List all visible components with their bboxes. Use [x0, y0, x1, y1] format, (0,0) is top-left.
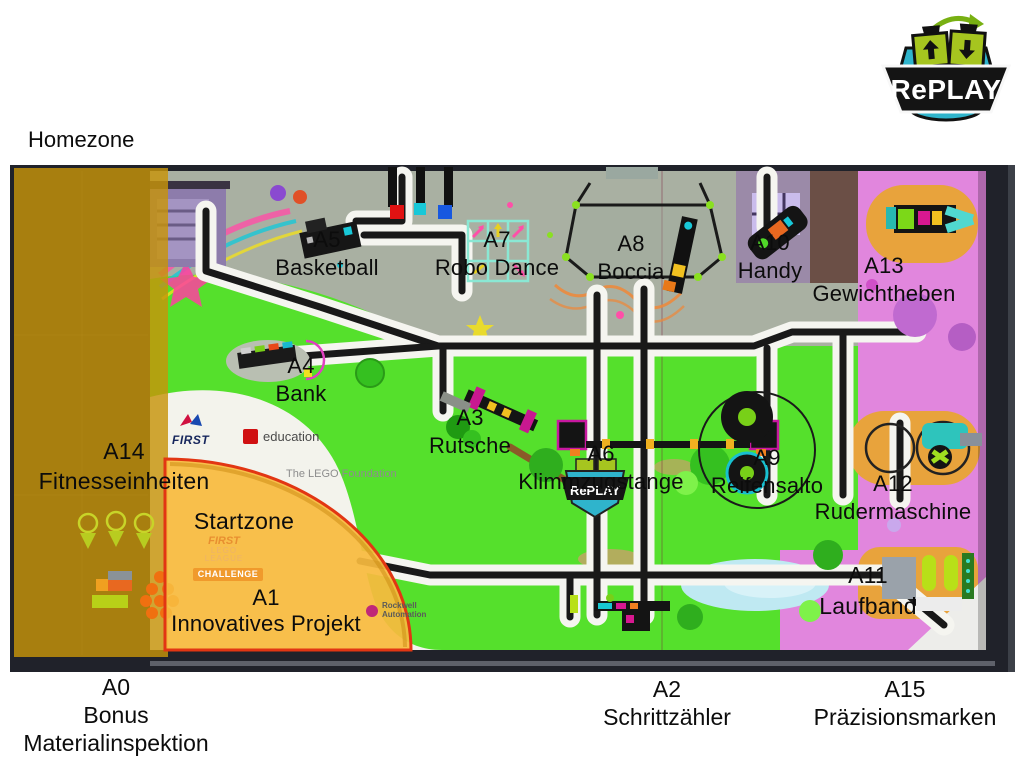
- startzone-text: Startzone: [194, 507, 294, 535]
- mission-id: A13: [812, 252, 955, 280]
- fll-league-wordmark: LEAGUE: [194, 555, 254, 563]
- mission-label-a14: A14 Fitnesseinheiten: [39, 436, 210, 496]
- mission-id: A11: [819, 560, 917, 591]
- mission-label-a2: A2 Schrittzähler: [603, 675, 731, 731]
- mission-id: A1: [171, 585, 361, 611]
- mission-id: A14: [39, 436, 210, 466]
- mission-id: A12: [815, 470, 972, 498]
- mission-id: A0: [23, 673, 208, 701]
- mission-name: Laufband: [819, 591, 917, 622]
- replay-logo: RePLAY: [876, 6, 1016, 128]
- foundation-wordmark: The LEGO Foundation: [286, 468, 397, 480]
- mission-name: Klimmzugstange: [518, 468, 683, 496]
- mission-name: Bonus: [23, 701, 208, 729]
- mission-name: Innovatives Projekt: [171, 611, 361, 637]
- mission-id: A5: [275, 226, 379, 254]
- mission-name: Schrittzähler: [603, 703, 731, 731]
- fll-logo: FIRST LEGO LEAGUE: [194, 536, 254, 563]
- mission-id: A9: [711, 444, 823, 472]
- mission-id: A15: [814, 675, 997, 703]
- rockwell-logo: Rockwell Automation: [366, 602, 426, 620]
- mission-label-a1: A1 Innovatives Projekt: [171, 585, 361, 637]
- education-wordmark: education: [263, 430, 319, 443]
- rockwell-wordmark: Rockwell Automation: [382, 602, 426, 620]
- mission-name: Handy: [738, 257, 803, 285]
- mission-label-a13: A13 Gewichtheben: [812, 252, 955, 308]
- mission-label-a12: A12 Rudermaschine: [815, 470, 972, 526]
- mission-label-a4: A4 Bank: [276, 352, 327, 408]
- rockwell-icon: [366, 605, 378, 617]
- mission-name: Gewichtheben: [812, 280, 955, 308]
- lego-education-logo: education: [243, 429, 319, 444]
- mission-name: Boccia: [597, 258, 664, 286]
- mission-name: Bank: [276, 380, 327, 408]
- mission-id: A10: [738, 229, 803, 257]
- mission-label-a11: A11 Laufband: [819, 560, 917, 622]
- mission-name: Präzisionsmarken: [814, 703, 997, 731]
- mission-id: A6: [518, 440, 683, 468]
- mission-name: Rudermaschine: [815, 498, 972, 526]
- logo-wordmark: RePLAY: [891, 74, 1002, 105]
- mission-label-a5: A5 Basketball: [275, 226, 379, 282]
- first-logo-icon: [178, 412, 204, 430]
- slide-canvas: RePLAY Homezone .rw{fill:none;stroke:#f5…: [0, 0, 1024, 768]
- mission-id: A3: [429, 404, 511, 432]
- mission-id: A4: [276, 352, 327, 380]
- mission-label-a0: A0 Bonus Materialinspektion: [23, 673, 208, 757]
- lego-foundation-logo: The LEGO Foundation: [286, 469, 397, 480]
- mission-id: A2: [603, 675, 731, 703]
- rockwell-line2: Automation: [382, 611, 426, 620]
- mission-label-a9: A9 Reifensalto: [711, 444, 823, 500]
- mission-name: Reifensalto: [711, 472, 823, 500]
- mission-label-a8: A8 Boccia: [597, 230, 664, 286]
- mission-label-a6: A6 Klimmzugstange: [518, 440, 683, 496]
- mission-name: Robo Dance: [435, 254, 559, 282]
- lego-brick-icon: [243, 429, 258, 444]
- challenge-badge: CHALLENGE: [193, 568, 263, 581]
- mission-label-a15: A15 Präzisionsmarken: [814, 675, 997, 731]
- startzone-label: Startzone: [194, 507, 294, 535]
- homezone-label: Homezone: [28, 127, 134, 153]
- mission-label-a7: A7 Robo Dance: [435, 226, 559, 282]
- mission-name: Fitnesseinheiten: [39, 466, 210, 496]
- orange-ball: [293, 190, 307, 204]
- mission-name: Rutsche: [429, 432, 511, 460]
- mission-name: Materialinspektion: [23, 729, 208, 757]
- mission-id: A8: [597, 230, 664, 258]
- purple-ball: [270, 185, 286, 201]
- mission-label-a3: A3 Rutsche: [429, 404, 511, 460]
- mission-id: A7: [435, 226, 559, 254]
- mission-name: Basketball: [275, 254, 379, 282]
- homezone-overlay: [14, 168, 179, 657]
- logo-bags-icon: [912, 23, 986, 68]
- mission-label-a10: A10 Handy: [738, 229, 803, 285]
